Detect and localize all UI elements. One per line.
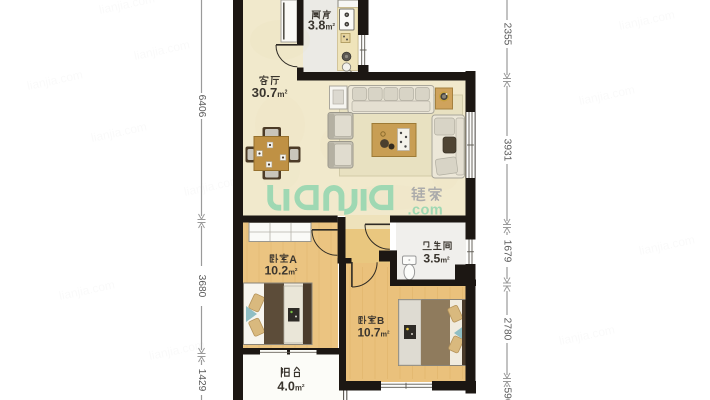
svg-text:6406: 6406 [196, 95, 207, 118]
svg-text:A: A [289, 254, 297, 266]
svg-text:2355: 2355 [502, 23, 513, 46]
svg-text:2780: 2780 [502, 318, 513, 341]
svg-text:1429: 1429 [196, 369, 207, 392]
svg-text:.com: .com [408, 202, 444, 218]
svg-text:596: 596 [502, 388, 513, 400]
svg-text:1679: 1679 [502, 240, 513, 263]
svg-text:3680: 3680 [196, 275, 207, 298]
svg-text:3931: 3931 [502, 139, 513, 162]
